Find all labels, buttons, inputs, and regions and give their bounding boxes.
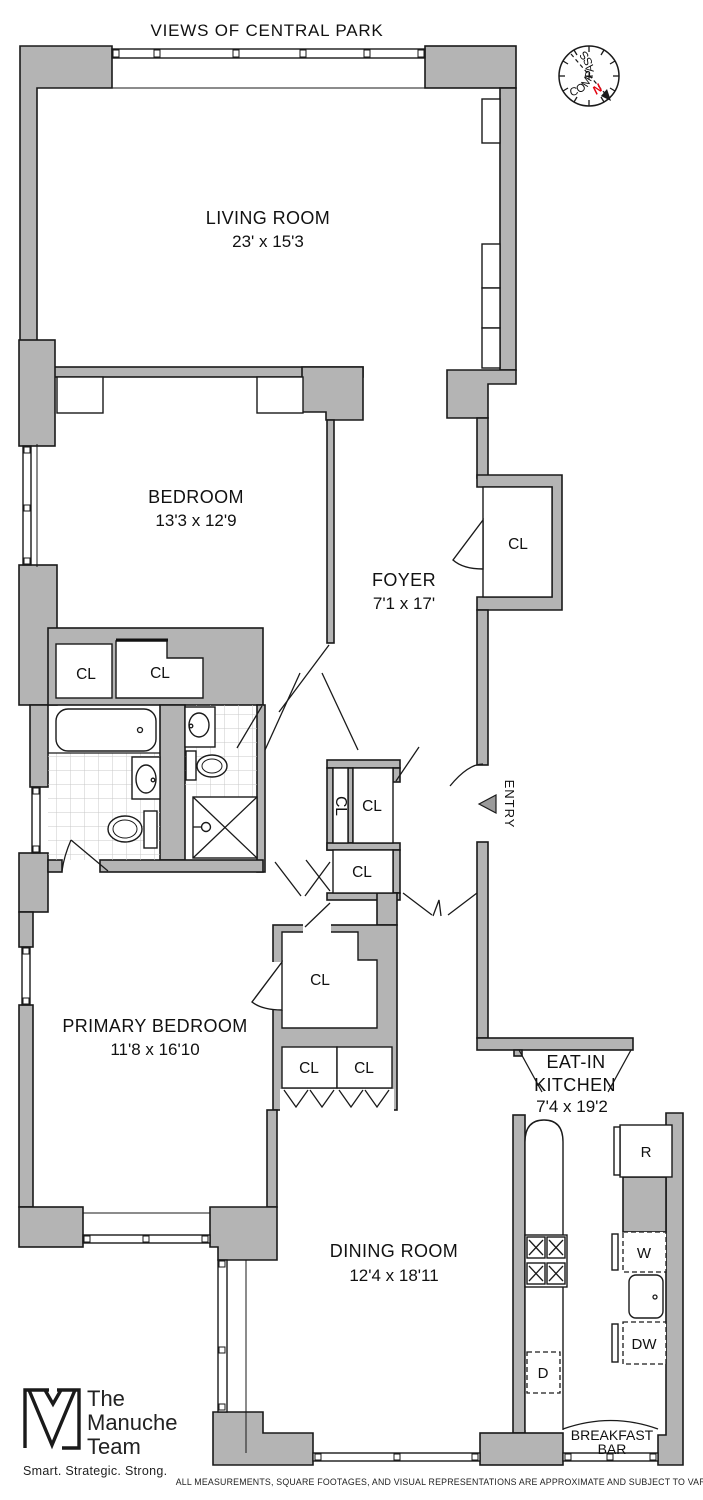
wall-primary-bottomright <box>210 1207 277 1260</box>
closet-label-primary: CL <box>310 972 330 989</box>
entry-label: ENTRY <box>502 780 517 829</box>
living-room-label: LIVING ROOM <box>206 208 330 228</box>
closet-label-mid: CL <box>362 798 382 815</box>
wall-bath-bottom-b <box>100 860 263 872</box>
niche-living-1 <box>482 99 500 143</box>
washer-label: W <box>637 1245 652 1262</box>
wall-bedroom-right <box>327 420 334 643</box>
door-hall-double-a <box>265 673 300 750</box>
page-title: VIEWS OF CENTRAL PARK <box>150 21 383 40</box>
wall-left-block1 <box>19 340 55 446</box>
toilet-bath1-icon <box>144 811 157 848</box>
wall-midcl-mid <box>327 843 400 850</box>
wall-foyer-right-upper <box>477 418 488 478</box>
toilet-bath2-icon <box>186 751 196 780</box>
door-dressing <box>305 903 330 927</box>
door-hall-double-b <box>322 673 358 750</box>
logo-word-3: Team <box>87 1434 141 1459</box>
wall-midcl-right <box>393 850 400 893</box>
wall-midcl-top <box>327 760 400 768</box>
closet-label-foyer: CL <box>508 536 528 553</box>
wall-bath-divider <box>160 705 185 860</box>
logo-word-1: The <box>87 1386 125 1411</box>
door-entry-swing <box>450 764 483 786</box>
wall-left-bath <box>30 705 48 787</box>
breakfast-bar-label-2: BAR <box>598 1441 627 1457</box>
window-dining-left <box>218 1260 227 1412</box>
door-mid-closet-lower <box>306 860 330 891</box>
wall-living-topright <box>425 46 516 88</box>
wall-living-right-step <box>447 370 516 418</box>
wall-left-strip2 <box>19 1005 33 1207</box>
compass-icon: COMPASS N <box>559 46 619 106</box>
disclaimer: ALL MEASUREMENTS, SQUARE FOOTAGES, AND V… <box>176 1477 703 1487</box>
door-primary-closet <box>252 962 282 1010</box>
window-primary-left <box>22 947 30 1005</box>
window-bath-left <box>32 787 40 853</box>
wall-primary-bottomleft <box>19 1207 83 1247</box>
kitchen <box>525 1120 672 1430</box>
wall-bath-bottom-a <box>48 860 62 872</box>
dining-room-label: DINING ROOM <box>330 1241 458 1261</box>
niche-living-3 <box>482 288 500 328</box>
niche-living-4 <box>482 328 500 368</box>
wall-kitchen-left <box>513 1115 525 1433</box>
bedroom-dims: 13'3 x 12'9 <box>155 511 236 530</box>
wall-left-block3 <box>19 853 48 912</box>
wall-below-entry <box>477 842 488 1038</box>
closet-label-bifold-2: CL <box>354 1060 374 1077</box>
wall-primary-right <box>267 1110 277 1207</box>
floor-plan-svg: COMPASS N VIEWS OF CENTRAL PARK LIVING R… <box>0 0 703 1500</box>
wall-bottom-mid <box>480 1433 563 1465</box>
kitchen-label-2: KITCHEN <box>534 1075 616 1095</box>
closet-label-bifold-1: CL <box>299 1060 319 1077</box>
foyer-dims: 7'1 x 17' <box>373 594 435 613</box>
entry-arrow-icon <box>479 795 496 813</box>
logo: The Manuche Team Smart. Strategic. Stron… <box>23 1386 178 1478</box>
closet-label-hall-2: CL <box>150 665 170 682</box>
closet-label-mid-lower: CL <box>352 864 372 881</box>
primary-bedroom-dims: 11'8 x 16'10 <box>110 1040 199 1059</box>
wall-hall-stub <box>377 893 397 925</box>
wall-kitchen-top <box>477 1038 633 1050</box>
closet-label-mid-vertical: CL <box>332 796 349 816</box>
door-hall-dining <box>403 893 477 916</box>
refrigerator-label: R <box>641 1144 652 1161</box>
bathrooms <box>48 705 257 860</box>
wall-left-strip1 <box>19 912 33 947</box>
living-room-dims: 23' x 15'3 <box>232 232 304 251</box>
wall-living-topleft <box>20 46 112 367</box>
dishwasher-label: DW <box>632 1336 658 1353</box>
logo-tagline: Smart. Strategic. Strong. <box>23 1464 167 1478</box>
primary-bedroom-label: PRIMARY BEDROOM <box>62 1016 247 1036</box>
logo-word-2: Manuche <box>87 1410 178 1435</box>
closet-label-hall-1: CL <box>76 666 96 683</box>
dining-room-dims: 12'4 x 18'11 <box>349 1266 438 1285</box>
kitchen-label-1: EAT-IN <box>546 1052 605 1072</box>
bathtub-icon <box>56 709 156 751</box>
floor-plan-page: COMPASS N VIEWS OF CENTRAL PARK LIVING R… <box>0 0 703 1500</box>
foyer-label: FOYER <box>372 570 436 590</box>
bedroom-label: BEDROOM <box>148 487 244 507</box>
wall-above-entry <box>477 610 488 765</box>
kitchen-sink-icon <box>629 1275 663 1318</box>
dryer-label: D <box>538 1365 549 1382</box>
door-bedroom <box>279 645 329 712</box>
niche-bedroom-1 <box>57 377 103 413</box>
wall-bath-right <box>257 705 265 872</box>
wall-bedroom-topright <box>302 367 363 420</box>
wall-living-right <box>500 88 516 370</box>
wall-dining-bottomleft <box>213 1412 313 1465</box>
door-foyer-closet <box>453 520 483 569</box>
kitchen-dims: 7'4 x 19'2 <box>536 1097 608 1116</box>
logo-mark-icon <box>25 1390 79 1448</box>
niche-living-2 <box>482 244 500 288</box>
wall-kitchen-appliance-gap <box>623 1177 666 1232</box>
niche-bedroom-2 <box>257 377 303 413</box>
